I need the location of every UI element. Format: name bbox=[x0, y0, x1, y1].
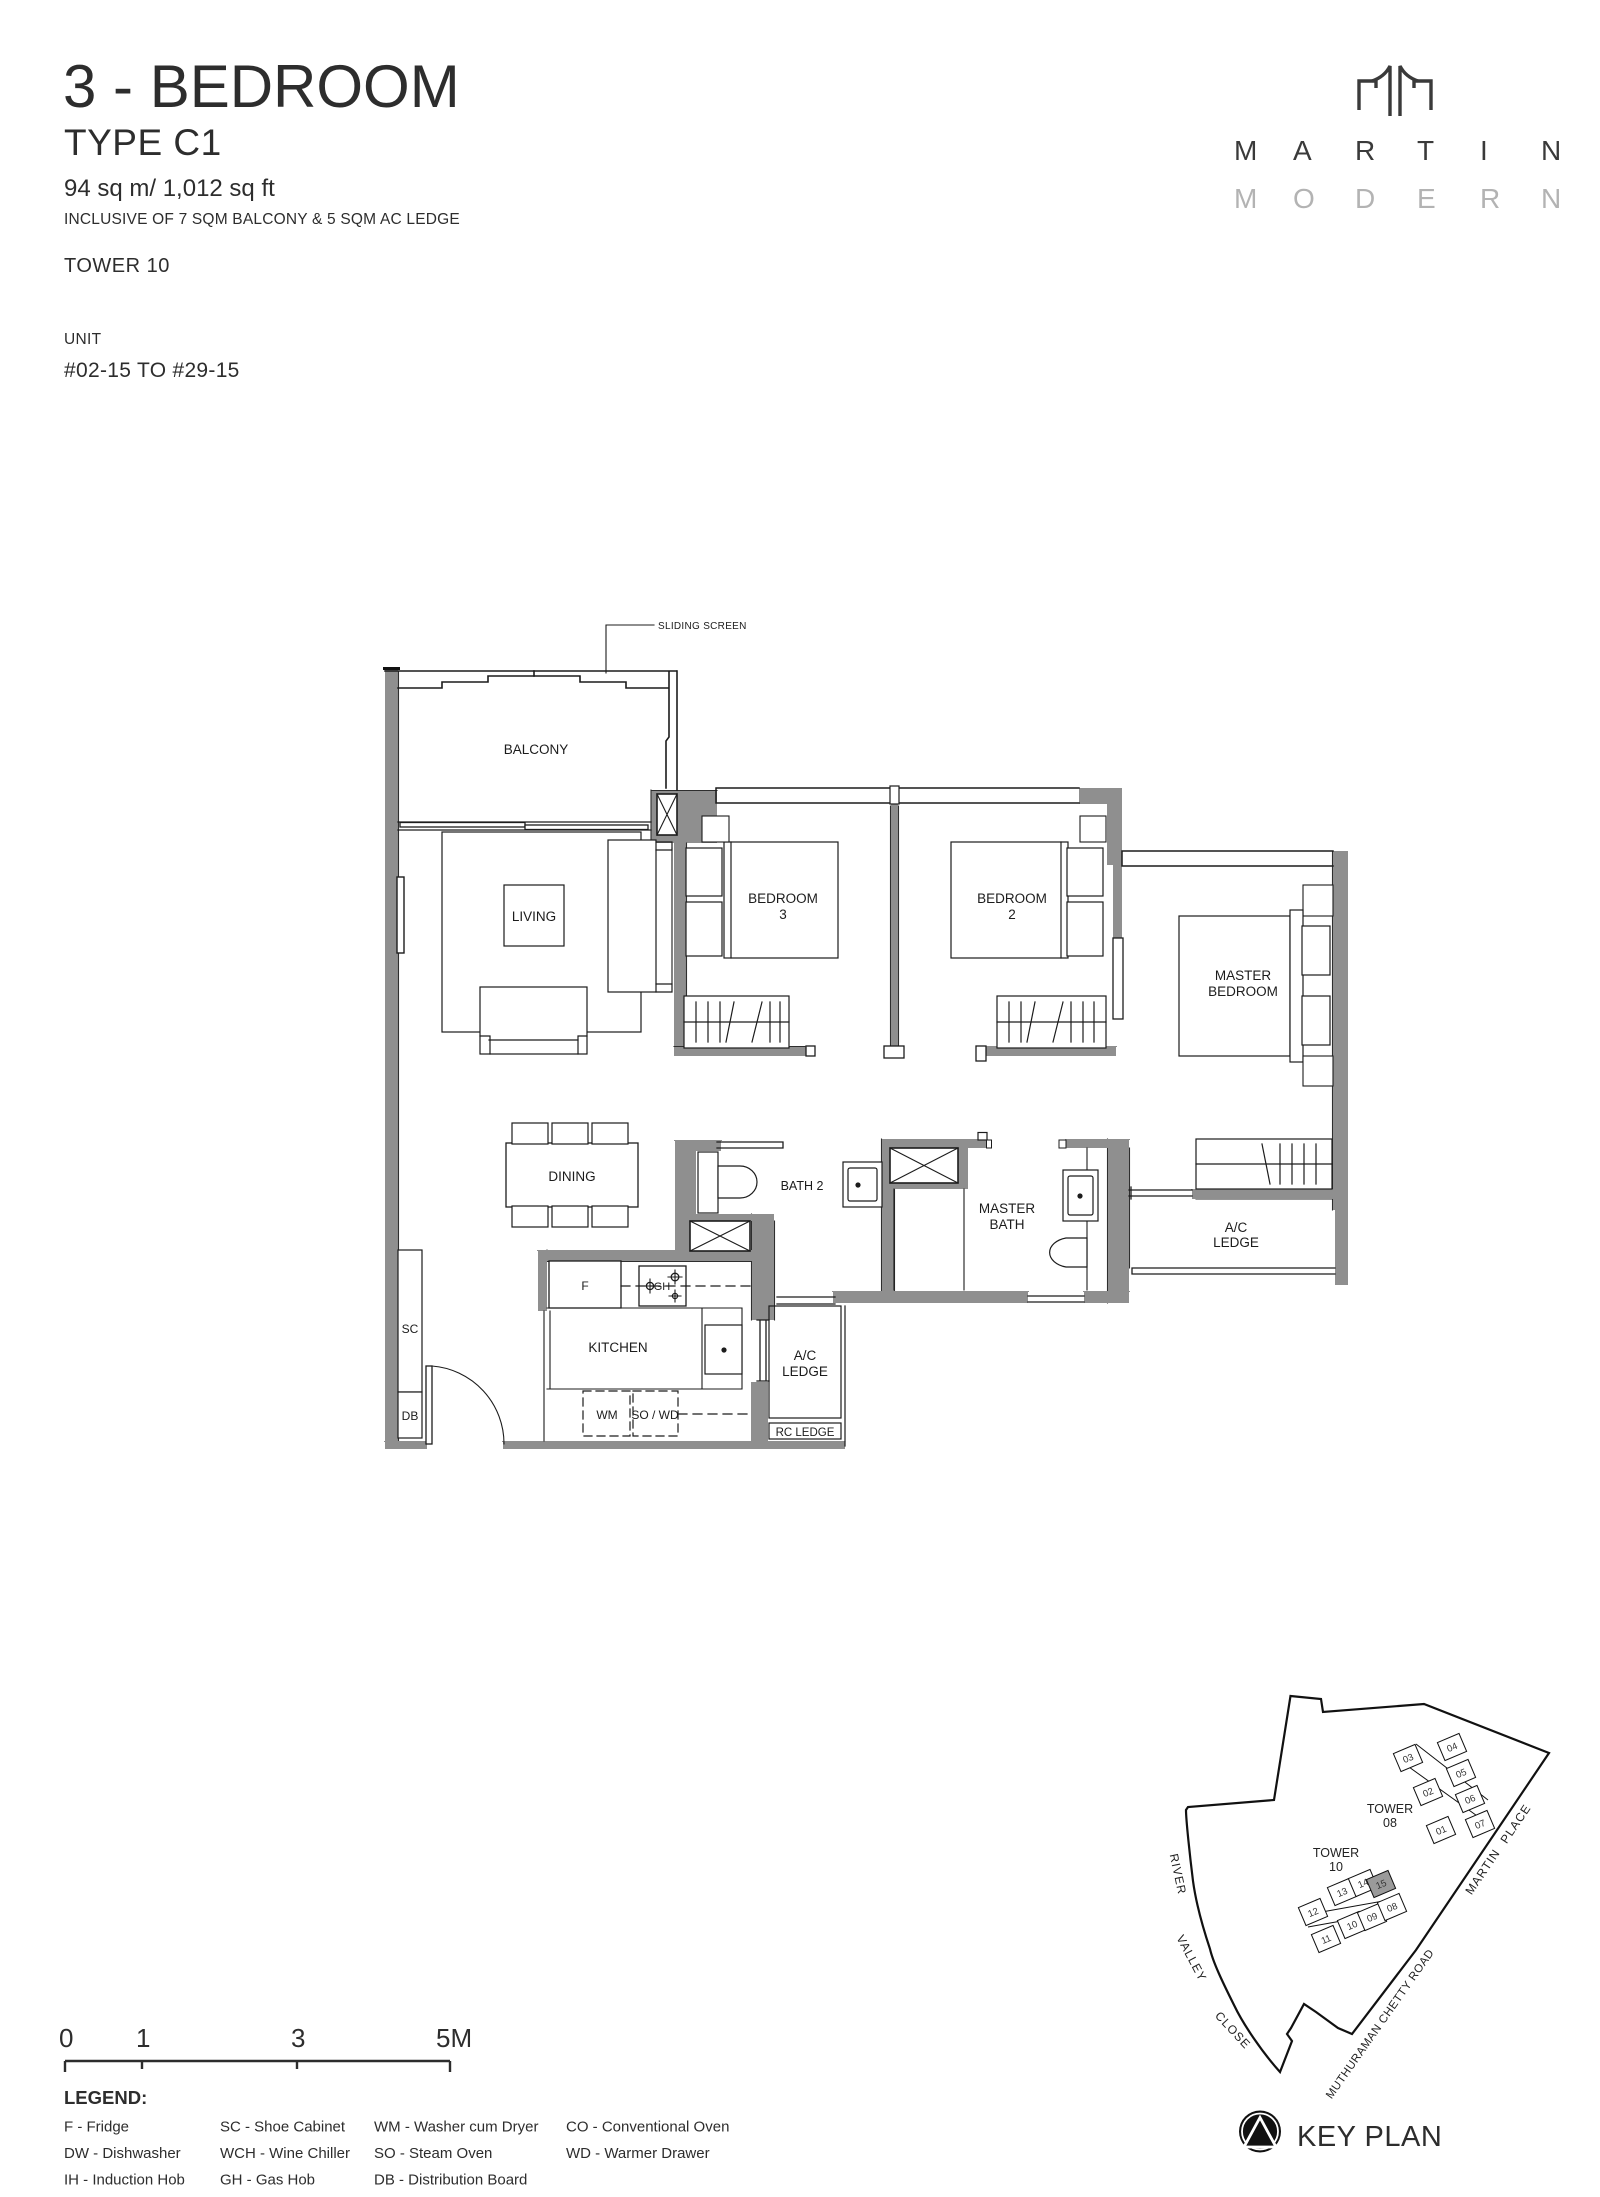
svg-text:O: O bbox=[1293, 183, 1315, 214]
svg-text:I: I bbox=[1480, 135, 1488, 166]
svg-text:D: D bbox=[1355, 183, 1375, 214]
svg-text:10: 10 bbox=[1329, 1860, 1343, 1874]
svg-text:TOWER: TOWER bbox=[1367, 1802, 1413, 1816]
svg-text:1: 1 bbox=[136, 2023, 150, 2053]
svg-text:0: 0 bbox=[59, 2023, 73, 2053]
svg-text:TOWER: TOWER bbox=[1313, 1846, 1359, 1860]
svg-text:08: 08 bbox=[1383, 1816, 1397, 1830]
svg-text:IH - Induction Hob: IH - Induction Hob bbox=[64, 2172, 185, 2189]
svg-text:CO - Conventional Oven: CO - Conventional Oven bbox=[566, 2119, 729, 2136]
svg-text:DB - Distribution Board: DB - Distribution Board bbox=[374, 2172, 527, 2189]
svg-text:BEDROOM: BEDROOM bbox=[1208, 984, 1278, 999]
svg-text:WCH - Wine Chiller: WCH - Wine Chiller bbox=[220, 2145, 350, 2162]
svg-text:GH - Gas Hob: GH - Gas Hob bbox=[220, 2172, 315, 2189]
svg-text:TYPE C1: TYPE C1 bbox=[64, 122, 222, 163]
svg-text:LEGEND:: LEGEND: bbox=[64, 2087, 147, 2108]
svg-text:DW - Dishwasher: DW - Dishwasher bbox=[64, 2145, 181, 2162]
svg-text:SO / WD: SO / WD bbox=[631, 1408, 679, 1422]
svg-text:DB: DB bbox=[402, 1409, 419, 1423]
svg-text:SLIDING SCREEN: SLIDING SCREEN bbox=[658, 621, 747, 632]
svg-text:M: M bbox=[1234, 183, 1257, 214]
svg-text:T: T bbox=[1417, 135, 1434, 166]
svg-text:A/C: A/C bbox=[794, 1348, 817, 1363]
svg-text:RC LEDGE: RC LEDGE bbox=[776, 1427, 835, 1439]
svg-text:WD - Warmer Drawer: WD - Warmer Drawer bbox=[566, 2145, 710, 2162]
svg-text:UNIT: UNIT bbox=[64, 331, 102, 348]
svg-text:R: R bbox=[1355, 135, 1375, 166]
svg-text:#02-15 TO #29-15: #02-15 TO #29-15 bbox=[64, 359, 240, 382]
svg-text:SO - Steam Oven: SO - Steam Oven bbox=[374, 2145, 492, 2162]
svg-text:F - Fridge: F - Fridge bbox=[64, 2119, 129, 2136]
svg-text:INCLUSIVE OF 7 SQM BALCONY & 5: INCLUSIVE OF 7 SQM BALCONY & 5 SQM AC LE… bbox=[64, 211, 460, 228]
svg-text:LEDGE: LEDGE bbox=[782, 1364, 828, 1379]
svg-text:BATH 2: BATH 2 bbox=[781, 1179, 824, 1193]
svg-text:R: R bbox=[1480, 183, 1500, 214]
svg-text:DINING: DINING bbox=[548, 1169, 595, 1184]
svg-text:3: 3 bbox=[779, 907, 787, 922]
svg-text:E: E bbox=[1417, 183, 1436, 214]
svg-text:KITCHEN: KITCHEN bbox=[588, 1340, 647, 1355]
svg-text:SC - Shoe Cabinet: SC - Shoe Cabinet bbox=[220, 2119, 346, 2136]
svg-text:WM: WM bbox=[596, 1408, 617, 1422]
svg-text:MASTER: MASTER bbox=[1215, 968, 1272, 983]
svg-text:5M: 5M bbox=[436, 2023, 472, 2053]
svg-text:KEY PLAN: KEY PLAN bbox=[1297, 2121, 1442, 2153]
svg-text:SC: SC bbox=[402, 1322, 419, 1336]
svg-text:BATH: BATH bbox=[989, 1217, 1024, 1232]
svg-text:3: 3 bbox=[291, 2023, 305, 2053]
svg-text:LEDGE: LEDGE bbox=[1213, 1235, 1259, 1250]
svg-text:N: N bbox=[1541, 135, 1561, 166]
svg-text:N: N bbox=[1541, 183, 1561, 214]
svg-text:3 - BEDROOM: 3 - BEDROOM bbox=[63, 53, 460, 120]
svg-text:A/C: A/C bbox=[1225, 1220, 1248, 1235]
svg-text:94 sq m/ 1,012 sq ft: 94 sq m/ 1,012 sq ft bbox=[64, 175, 275, 202]
svg-text:WM - Washer cum Dryer: WM - Washer cum Dryer bbox=[374, 2119, 538, 2136]
svg-text:MASTER: MASTER bbox=[979, 1201, 1036, 1216]
svg-text:LIVING: LIVING bbox=[512, 909, 556, 924]
svg-text:M: M bbox=[1234, 135, 1257, 166]
svg-text:GH: GH bbox=[654, 1281, 671, 1293]
svg-text:2: 2 bbox=[1008, 907, 1016, 922]
svg-text:BEDROOM: BEDROOM bbox=[748, 891, 818, 906]
svg-text:A: A bbox=[1293, 135, 1312, 166]
svg-text:BEDROOM: BEDROOM bbox=[977, 891, 1047, 906]
svg-text:TOWER 10: TOWER 10 bbox=[64, 255, 170, 277]
svg-text:BALCONY: BALCONY bbox=[504, 742, 569, 757]
svg-text:F: F bbox=[581, 1279, 588, 1293]
